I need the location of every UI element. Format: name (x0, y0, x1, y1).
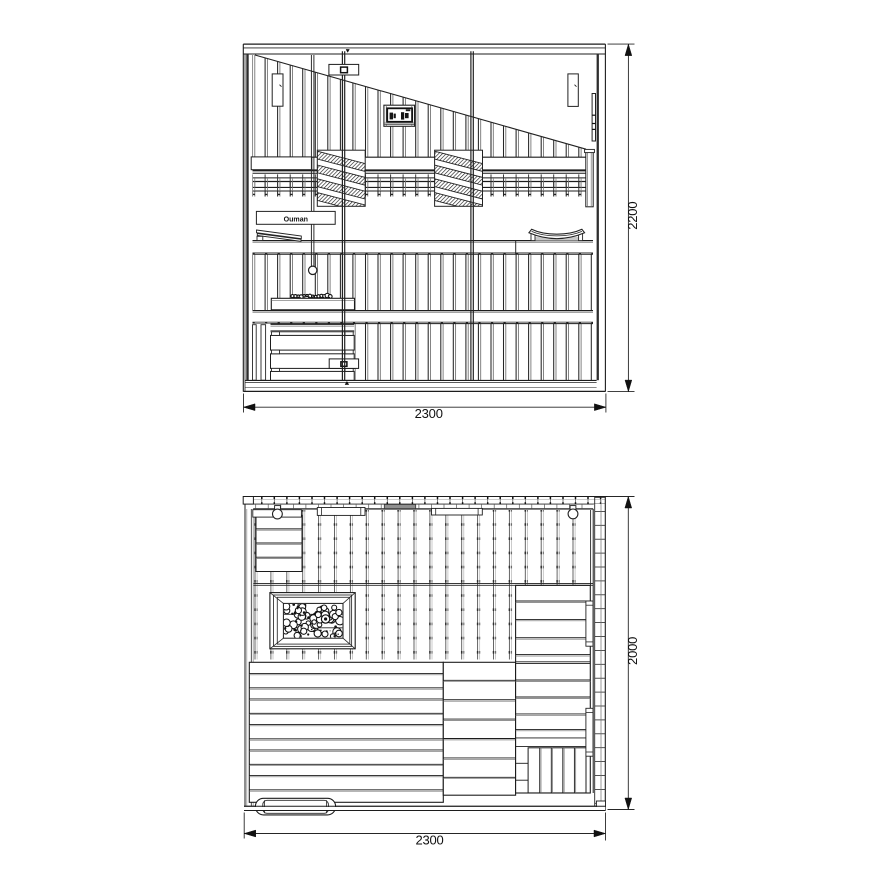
svg-text:2300: 2300 (415, 833, 443, 848)
svg-text:Ouman: Ouman (284, 216, 308, 224)
svg-text:2200: 2200 (625, 202, 640, 230)
svg-text:2000: 2000 (625, 637, 640, 665)
svg-text:2300: 2300 (415, 406, 443, 421)
